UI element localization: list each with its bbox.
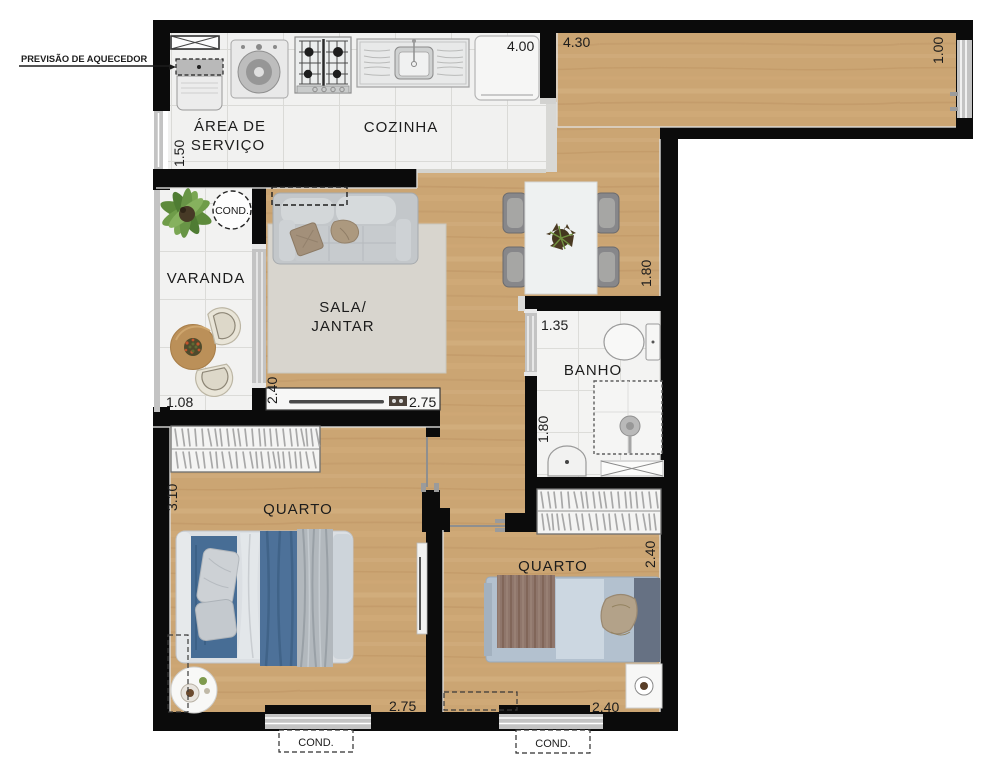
svg-text:COZINHA: COZINHA [364, 119, 439, 136]
svg-text:2.75: 2.75 [409, 394, 436, 410]
svg-text:2.40: 2.40 [592, 699, 619, 715]
svg-text:2.40: 2.40 [642, 541, 658, 568]
svg-text:COND.: COND. [535, 738, 570, 750]
svg-text:2.75: 2.75 [389, 698, 416, 714]
svg-text:3.10: 3.10 [164, 484, 180, 511]
svg-text:1.80: 1.80 [638, 260, 654, 287]
svg-text:SERVIÇO: SERVIÇO [191, 137, 265, 154]
svg-text:VARANDA: VARANDA [167, 270, 245, 287]
svg-text:QUARTO: QUARTO [263, 501, 333, 518]
svg-text:1.00: 1.00 [930, 37, 946, 64]
svg-text:ÁREA DE: ÁREA DE [194, 118, 266, 135]
svg-text:SALA/: SALA/ [319, 299, 367, 316]
svg-text:QUARTO: QUARTO [518, 558, 588, 575]
svg-text:1.35: 1.35 [541, 317, 568, 333]
svg-text:2.40: 2.40 [264, 377, 280, 404]
svg-text:COND.: COND. [298, 737, 333, 749]
svg-text:BANHO: BANHO [564, 362, 622, 379]
svg-text:1.08: 1.08 [166, 394, 193, 410]
svg-text:4.00: 4.00 [507, 38, 534, 54]
svg-text:4.30: 4.30 [563, 34, 590, 50]
svg-text:PREVISÃO DE AQUECEDOR: PREVISÃO DE AQUECEDOR [21, 54, 148, 64]
svg-text:1.80: 1.80 [535, 416, 551, 443]
svg-text:COND.: COND. [215, 205, 249, 217]
svg-text:JANTAR: JANTAR [311, 318, 374, 335]
svg-text:1.50: 1.50 [171, 140, 187, 167]
